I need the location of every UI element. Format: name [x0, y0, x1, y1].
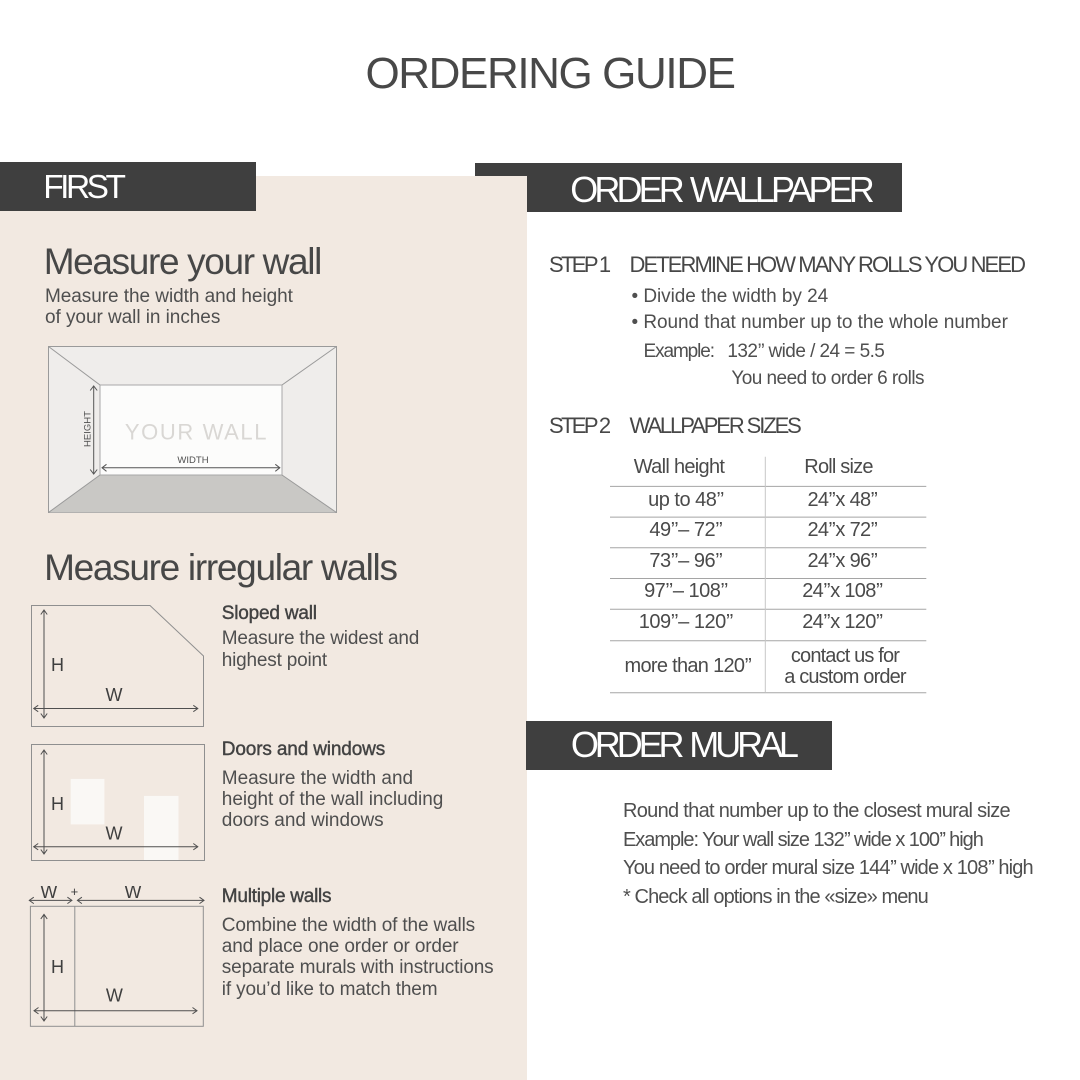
svg-text:W: W	[106, 824, 123, 844]
svg-text:YOUR WALL: YOUR WALL	[125, 420, 268, 445]
svg-text:WIDTH: WIDTH	[177, 455, 208, 466]
svg-text:W: W	[125, 886, 142, 902]
svg-text:W: W	[106, 685, 123, 705]
svg-text:H: H	[51, 655, 64, 675]
svg-text:H: H	[51, 957, 64, 977]
svg-text:+: +	[71, 886, 79, 899]
svg-text:H: H	[51, 794, 64, 814]
svg-text:W: W	[106, 986, 123, 1006]
svg-text:W: W	[40, 886, 57, 902]
svg-text:HEIGHT: HEIGHT	[83, 411, 94, 447]
